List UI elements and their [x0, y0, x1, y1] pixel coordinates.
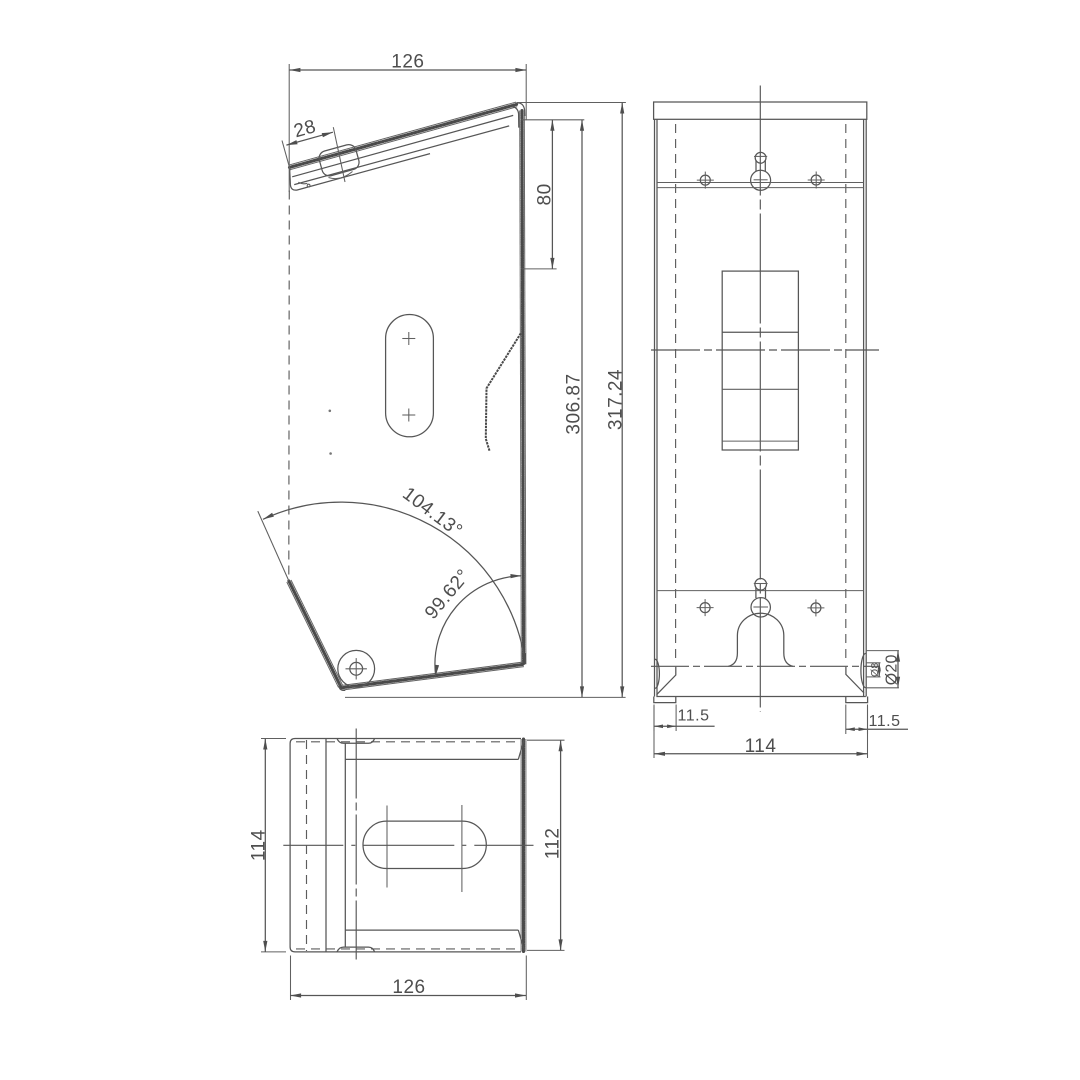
svg-text:112: 112	[543, 828, 564, 860]
svg-text:Ø8: Ø8	[869, 663, 881, 677]
svg-text:11.5: 11.5	[678, 708, 710, 725]
svg-text:317.24: 317.24	[606, 369, 627, 430]
svg-text:80: 80	[535, 183, 556, 205]
svg-text:Ø20: Ø20	[883, 654, 900, 685]
svg-text:114: 114	[745, 736, 777, 757]
svg-text:126: 126	[392, 977, 425, 998]
svg-text:114: 114	[248, 829, 269, 861]
svg-text:11.5: 11.5	[869, 713, 901, 730]
svg-text:126: 126	[391, 51, 424, 72]
svg-text:306.87: 306.87	[564, 373, 585, 434]
